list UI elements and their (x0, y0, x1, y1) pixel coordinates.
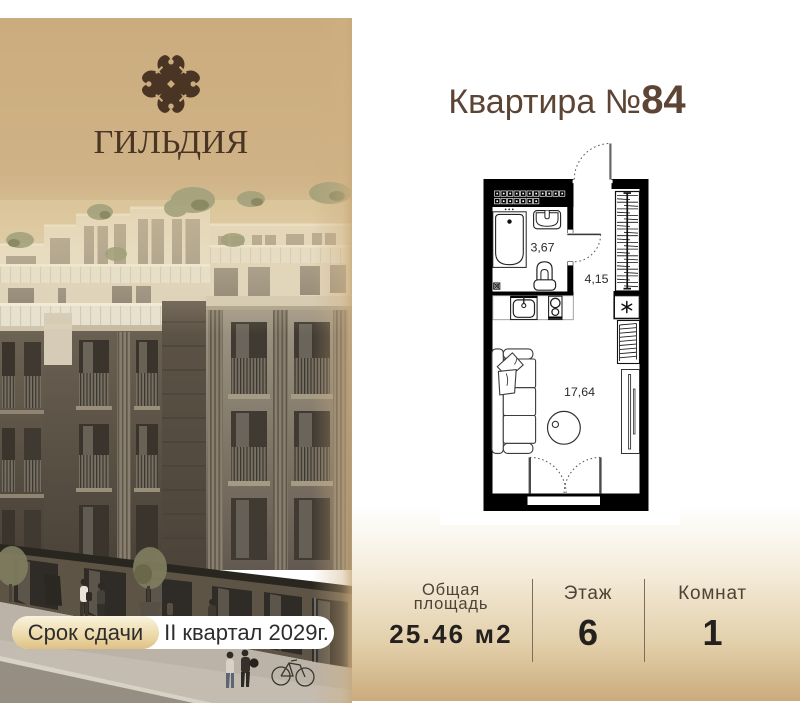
svg-text:3,67: 3,67 (530, 241, 554, 255)
svg-text:17,64: 17,64 (564, 385, 595, 399)
svg-text:4,15: 4,15 (584, 272, 608, 286)
